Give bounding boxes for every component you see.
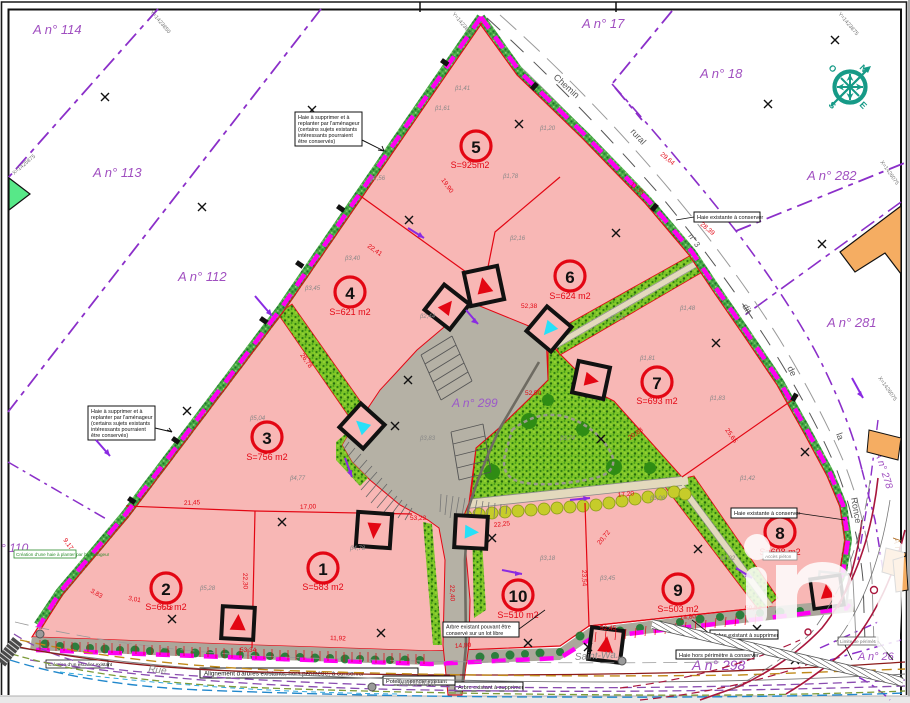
svg-text:A n° 112: A n° 112: [177, 269, 227, 284]
svg-text:9: 9: [673, 581, 682, 600]
svg-text:A n° 282: A n° 282: [806, 168, 857, 183]
svg-text:β1,48: β1,48: [679, 306, 696, 312]
svg-text:β4,78: β4,78: [349, 546, 366, 552]
svg-text:β1,70: β1,70: [609, 316, 626, 322]
svg-text:52,50: 52,50: [525, 390, 542, 397]
svg-text:2: 2: [161, 580, 170, 599]
svg-text:β1,02: β1,02: [719, 556, 736, 562]
svg-text:β1,61: β1,61: [434, 106, 450, 112]
svg-text:4: 4: [345, 284, 355, 303]
svg-text:1: 1: [318, 560, 327, 579]
svg-text:3: 3: [262, 429, 271, 448]
svg-text:β3,45: β3,45: [304, 286, 321, 292]
svg-text:β1,41: β1,41: [454, 86, 470, 92]
svg-text:17,00: 17,00: [300, 503, 317, 511]
svg-text:β3,08: β3,08: [649, 496, 666, 502]
svg-text:β5,28: β5,28: [199, 586, 216, 592]
svg-text:S=624 m2: S=624 m2: [549, 291, 590, 301]
svg-text:A n° 17: A n° 17: [581, 16, 625, 31]
svg-text:S=756 m2: S=756 m2: [246, 452, 287, 462]
svg-text:53,23: 53,23: [410, 515, 427, 522]
svg-text:Limite de périmètre: Limite de périmètre: [840, 639, 880, 644]
svg-text:β3,18: β3,18: [539, 556, 556, 562]
svg-text:S=925m2: S=925m2: [451, 160, 490, 170]
svg-text:A n° 18: A n° 18: [699, 66, 743, 81]
svg-text:6: 6: [565, 268, 574, 287]
svg-text:Saint-Wa: Saint-Wa: [395, 678, 436, 689]
svg-text:7: 7: [652, 374, 661, 393]
svg-text:β3,40: β3,40: [344, 256, 361, 262]
svg-text:Rue: Rue: [148, 664, 168, 677]
svg-text:S=510 m2: S=510 m2: [497, 610, 538, 620]
svg-text:Création d'une haie à planter: Création d'une haie à planter par l'amén…: [16, 552, 110, 557]
svg-text:Haie hors périmètre à conserve: Haie hors périmètre à conserver: [679, 653, 759, 659]
svg-text:A n° 26: A n° 26: [857, 651, 895, 663]
svg-text:A n° 281: A n° 281: [826, 315, 877, 330]
svg-text:β3,45: β3,45: [599, 576, 616, 582]
svg-text:8: 8: [775, 524, 784, 543]
svg-text:A n° 114: A n° 114: [32, 22, 82, 37]
svg-text:S=693 m2: S=693 m2: [636, 396, 677, 406]
svg-text:52,38: 52,38: [521, 303, 538, 310]
svg-text:22,40: 22,40: [448, 585, 456, 602]
svg-text:22,30: 22,30: [241, 573, 249, 590]
svg-text:être conservés): être conservés): [298, 139, 335, 145]
svg-text:Arbre existant pouvant être: Arbre existant pouvant être: [446, 625, 511, 631]
svg-text:être conservés): être conservés): [91, 433, 128, 439]
svg-text:A n° 113: A n° 113: [92, 165, 142, 180]
svg-text:Haie existante à conserver: Haie existante à conserver: [734, 511, 800, 517]
svg-text:23,54: 23,54: [580, 570, 588, 587]
svg-text:β3,74: β3,74: [559, 436, 576, 442]
svg-text:Haie existante à conserver: Haie existante à conserver: [697, 215, 763, 221]
svg-text:β4,77: β4,77: [289, 476, 306, 482]
svg-text:β1,42: β1,42: [739, 476, 756, 482]
svg-text:β2,56: β2,56: [369, 176, 386, 182]
svg-text:β2,44: β2,44: [419, 314, 436, 320]
svg-text:S=621 m2: S=621 m2: [329, 307, 370, 317]
svg-text:14,80: 14,80: [455, 642, 472, 650]
svg-text:β3,83: β3,83: [419, 436, 436, 442]
svg-text:S=583 m2: S=583 m2: [302, 582, 343, 592]
svg-text:β5,04: β5,04: [249, 416, 266, 422]
svg-text:β1,20: β1,20: [539, 126, 556, 132]
svg-text:Accès piéton: Accès piéton: [765, 554, 792, 559]
svg-text:21,45: 21,45: [184, 499, 201, 507]
svg-text:β1,83: β1,83: [709, 396, 726, 402]
svg-text:11,92: 11,92: [330, 635, 346, 643]
svg-text:52,45: 52,45: [600, 625, 617, 632]
svg-text:5: 5: [471, 138, 480, 157]
svg-text:β1,78: β1,78: [502, 174, 519, 180]
svg-text:A n° 299: A n° 299: [451, 396, 498, 410]
svg-text:conservé sur un lot libre: conservé sur un lot libre: [446, 631, 503, 637]
svg-text:β2,16: β2,16: [509, 236, 526, 242]
svg-text:β1,81: β1,81: [639, 356, 655, 362]
svg-text:10: 10: [509, 587, 528, 606]
